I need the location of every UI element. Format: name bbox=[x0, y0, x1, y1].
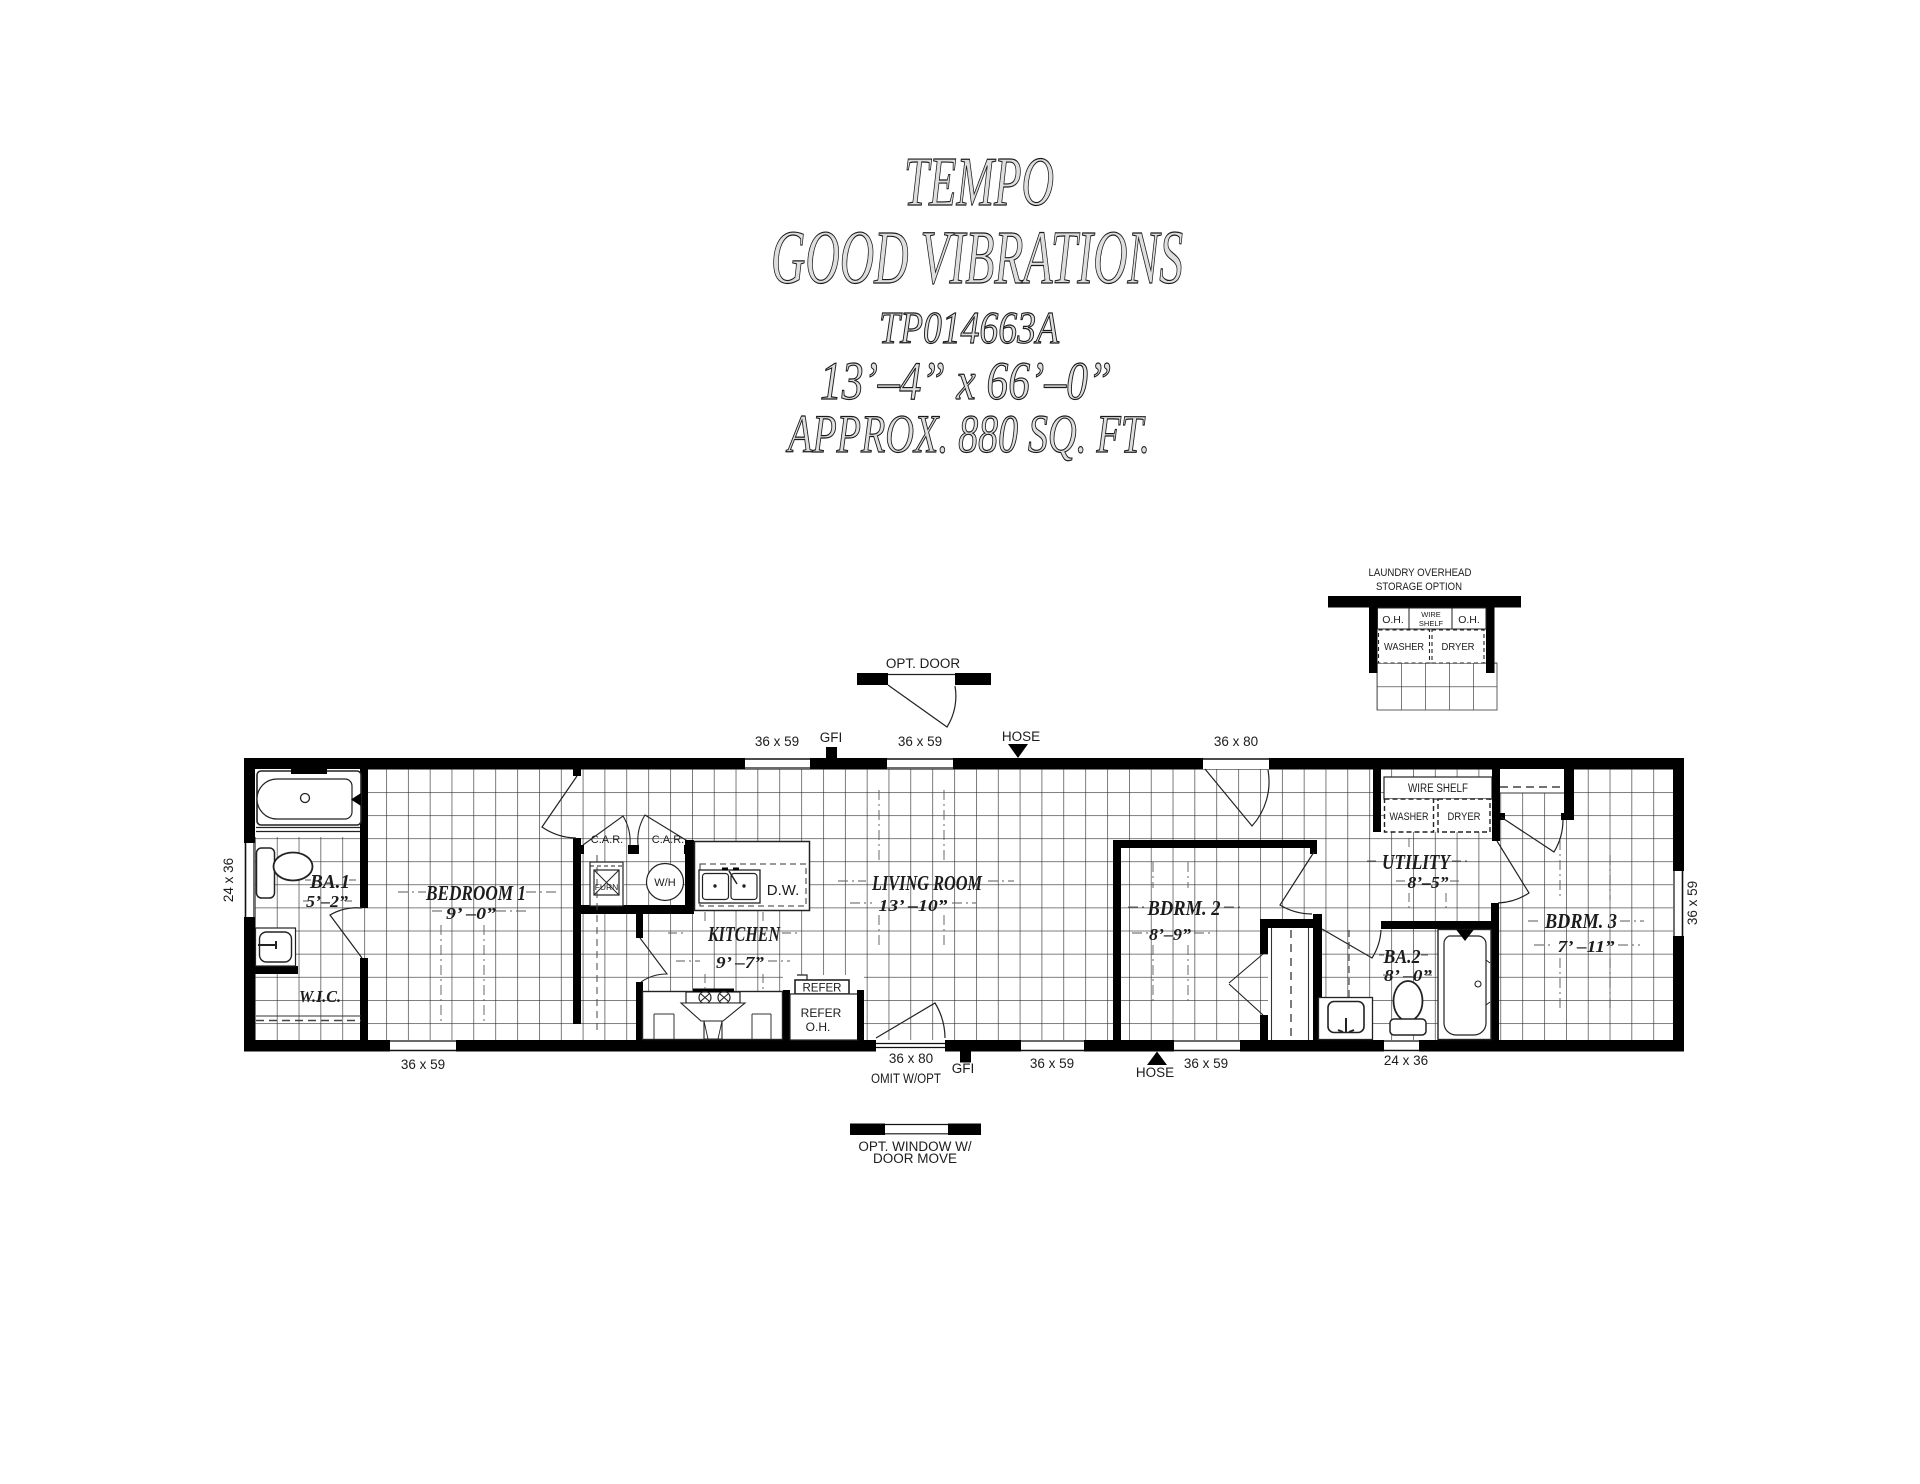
svg-text:36 x 80: 36 x 80 bbox=[889, 1051, 933, 1066]
svg-text:5’–2”: 5’–2” bbox=[306, 892, 349, 911]
svg-text:36 x 80: 36 x 80 bbox=[1214, 734, 1258, 749]
svg-text:WASHER: WASHER bbox=[1390, 811, 1429, 823]
svg-text:36 x 59: 36 x 59 bbox=[1685, 881, 1700, 925]
svg-text:36 x 59: 36 x 59 bbox=[755, 734, 799, 749]
svg-text:OMIT W/OPT: OMIT W/OPT bbox=[871, 1071, 941, 1086]
svg-text:REFER: REFER bbox=[803, 983, 842, 995]
svg-text:O.H.: O.H. bbox=[1458, 614, 1480, 626]
svg-text:W/H: W/H bbox=[654, 877, 675, 889]
svg-text:9’ –7”: 9’ –7” bbox=[716, 953, 765, 972]
svg-text:TP014663A: TP014663A bbox=[879, 302, 1060, 353]
svg-text:BEDROOM 1: BEDROOM 1 bbox=[425, 881, 526, 905]
svg-text:STORAGE OPTION: STORAGE OPTION bbox=[1376, 581, 1462, 593]
svg-text:24 x 36: 24 x 36 bbox=[221, 858, 236, 902]
svg-text:36 x 59: 36 x 59 bbox=[401, 1057, 445, 1072]
svg-text:UTILITY: UTILITY bbox=[1382, 850, 1452, 874]
svg-text:36 x 59: 36 x 59 bbox=[898, 734, 942, 749]
svg-text:DRYER: DRYER bbox=[1442, 642, 1475, 653]
svg-text:O.H.: O.H. bbox=[1382, 614, 1404, 626]
svg-text:13’–4” x 66’–0”: 13’–4” x 66’–0” bbox=[820, 351, 1112, 411]
svg-text:SHELF: SHELF bbox=[1419, 619, 1444, 628]
svg-text:C.A.R.: C.A.R. bbox=[652, 834, 684, 846]
svg-text:36 x 59: 36 x 59 bbox=[1030, 1056, 1074, 1071]
svg-text:BDRM. 3: BDRM. 3 bbox=[1544, 909, 1617, 933]
svg-text:APPROX. 880 SQ. FT.: APPROX. 880 SQ. FT. bbox=[786, 404, 1150, 464]
svg-text:GFI: GFI bbox=[952, 1061, 975, 1076]
svg-text:KITCHEN: KITCHEN bbox=[707, 922, 780, 946]
svg-text:LIVING ROOM: LIVING ROOM bbox=[871, 871, 983, 895]
svg-text:13’ –10”: 13’ –10” bbox=[879, 896, 949, 915]
svg-text:W.I.C.: W.I.C. bbox=[299, 987, 341, 1006]
svg-text:GFI: GFI bbox=[820, 730, 843, 745]
svg-text:DOOR MOVE: DOOR MOVE bbox=[873, 1151, 957, 1166]
svg-text:BDRM. 2: BDRM. 2 bbox=[1147, 896, 1221, 920]
svg-text:24 x 36: 24 x 36 bbox=[1384, 1053, 1428, 1068]
svg-text:TEMPO: TEMPO bbox=[904, 144, 1054, 221]
svg-text:FURN: FURN bbox=[595, 882, 619, 892]
svg-text:9’ –0”: 9’ –0” bbox=[446, 904, 497, 923]
svg-text:HOSE: HOSE bbox=[1002, 729, 1040, 744]
svg-text:WIRE: WIRE bbox=[1421, 610, 1441, 619]
svg-text:GOOD VIBRATIONS: GOOD VIBRATIONS bbox=[771, 216, 1183, 300]
svg-text:36 x 59: 36 x 59 bbox=[1184, 1056, 1228, 1071]
svg-text:8’–5”: 8’–5” bbox=[1408, 873, 1450, 892]
svg-text:WASHER: WASHER bbox=[1384, 642, 1424, 653]
svg-text:BA.1: BA.1 bbox=[309, 871, 350, 893]
svg-text:8’–9”: 8’–9” bbox=[1149, 925, 1192, 944]
svg-text:REFER: REFER bbox=[801, 1006, 842, 1020]
svg-text:LAUNDRY OVERHEAD: LAUNDRY OVERHEAD bbox=[1369, 567, 1472, 579]
svg-text:D.W.: D.W. bbox=[767, 882, 800, 899]
svg-text:HOSE: HOSE bbox=[1136, 1065, 1174, 1080]
svg-text:O.H.: O.H. bbox=[806, 1020, 831, 1034]
svg-text:C.A.R.: C.A.R. bbox=[591, 834, 623, 846]
svg-text:BA.2: BA.2 bbox=[1383, 946, 1421, 968]
svg-text:WIRE SHELF: WIRE SHELF bbox=[1408, 783, 1468, 795]
svg-text:DRYER: DRYER bbox=[1448, 811, 1481, 823]
svg-text:7’ –11”: 7’ –11” bbox=[1558, 937, 1616, 956]
svg-text:OPT. DOOR: OPT. DOOR bbox=[886, 656, 961, 671]
